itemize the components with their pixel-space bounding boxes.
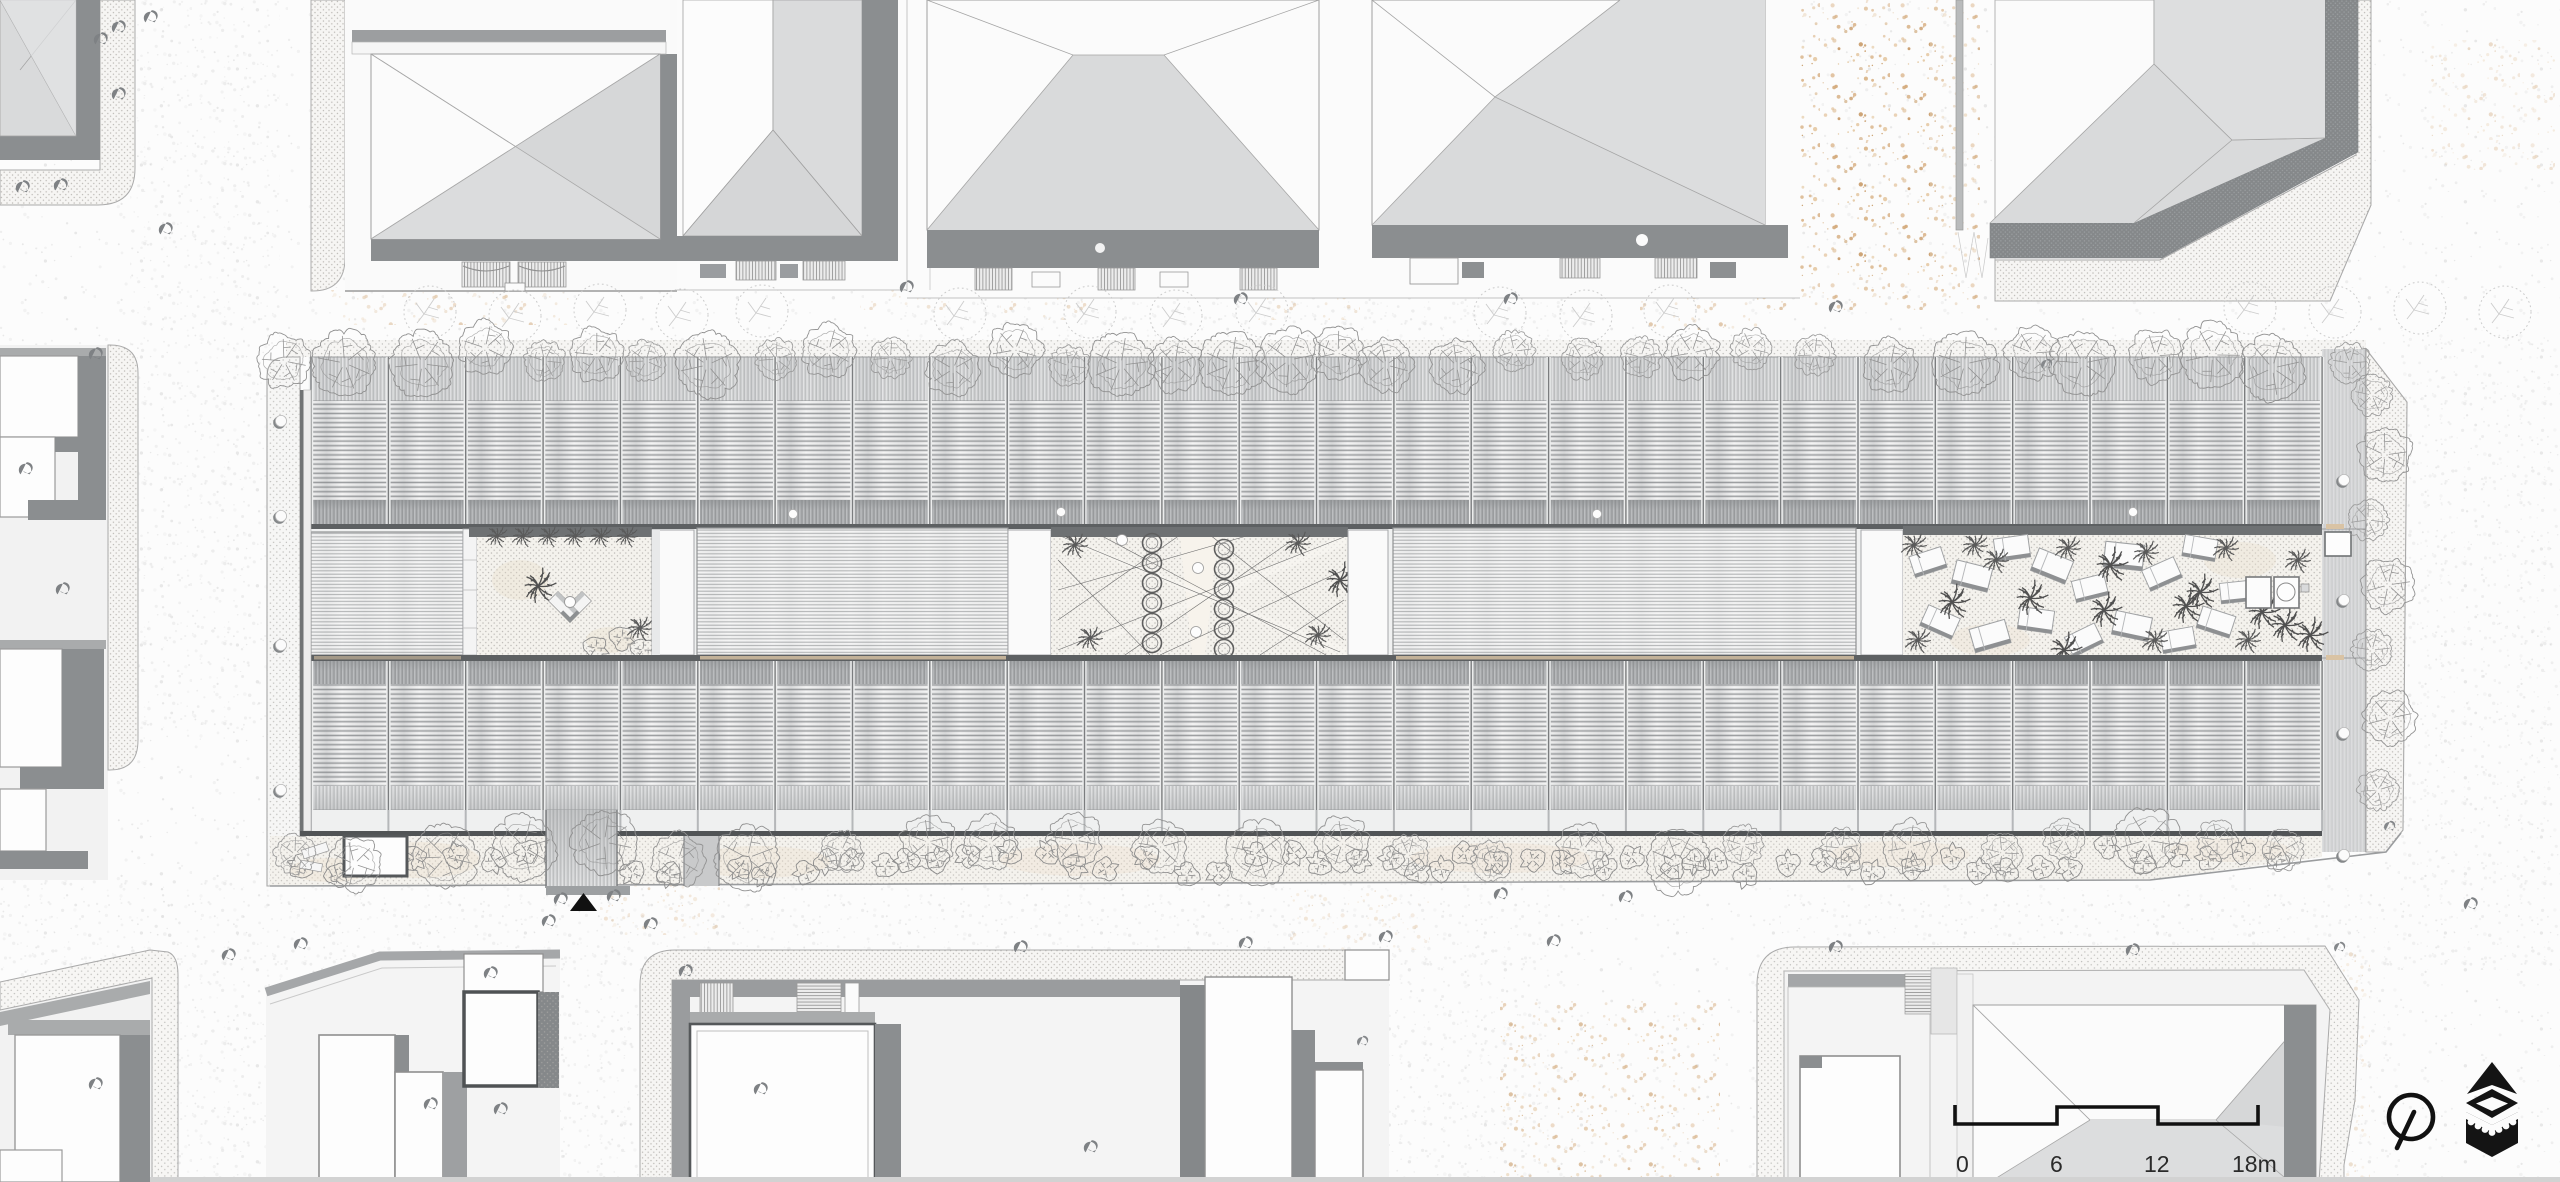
svg-text:6: 6 xyxy=(2050,1151,2063,1177)
svg-text:18m: 18m xyxy=(2232,1151,2277,1177)
svg-text:12: 12 xyxy=(2144,1151,2170,1177)
svg-text:0: 0 xyxy=(1956,1151,1969,1177)
